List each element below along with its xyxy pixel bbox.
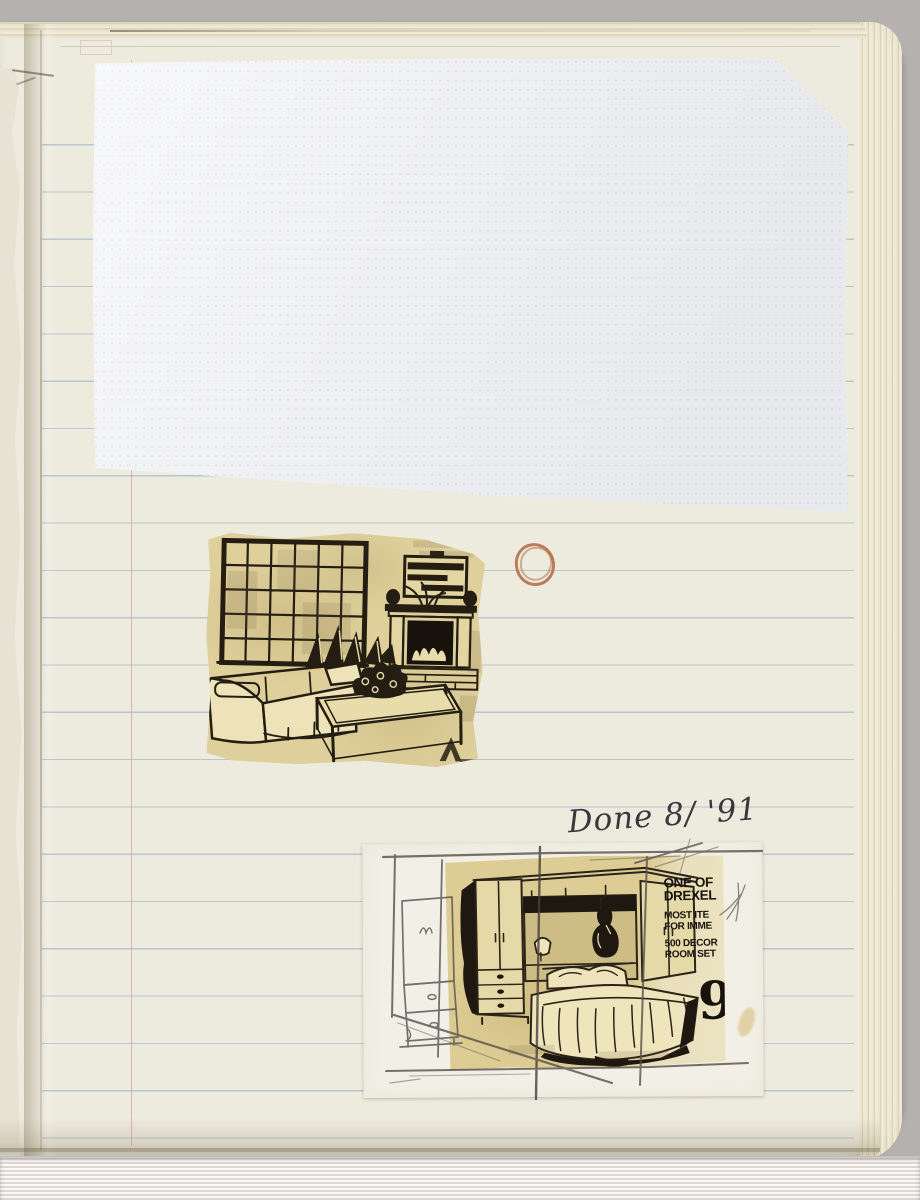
ad-line: DREXEL: [664, 888, 727, 902]
page-bottom-fold-shadow: [0, 1118, 880, 1152]
ghost-letter-A: [440, 737, 462, 761]
price-digit: 9: [697, 975, 727, 1028]
notebook-photo: Done 8/ '91: [0, 0, 920, 1200]
fabric-surface: [0, 1156, 920, 1200]
bedroom-clipping: ONE OF DREXEL MOST ITE FOR IMME 500 DECO…: [445, 853, 727, 1070]
page-top-crease: [110, 30, 810, 32]
living-room-illustration: [204, 530, 486, 768]
ad-text-block: ONE OF DREXEL MOST ITE FOR IMME 500 DECO…: [663, 875, 727, 960]
window-grid: [218, 540, 371, 665]
ad-line: ROOM SET: [665, 949, 727, 961]
living-room-clipping: [204, 530, 486, 768]
wardrobe-left: [460, 879, 529, 1024]
page-top-fold-line: [60, 46, 840, 47]
page-edge-stack: [860, 22, 902, 1160]
binding-fold-line: [40, 30, 42, 1150]
graph-paper-sheet: [92, 57, 848, 515]
tape-residue-mark: [80, 40, 112, 55]
